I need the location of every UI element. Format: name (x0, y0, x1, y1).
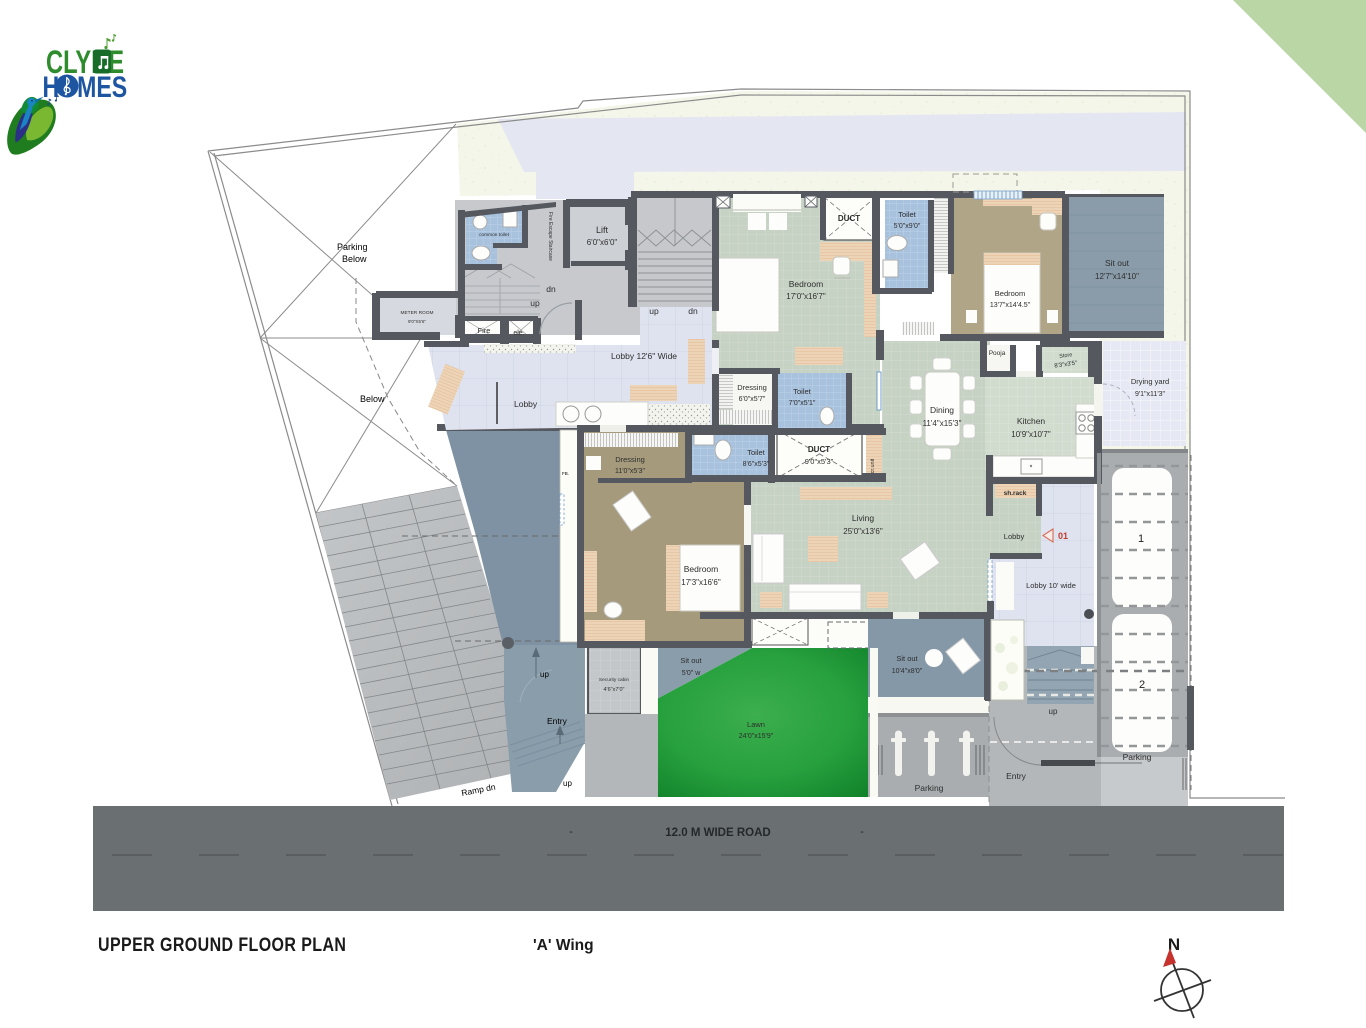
svg-text:Lobby: Lobby (1004, 532, 1025, 541)
svg-text:Sit out: Sit out (680, 656, 702, 665)
svg-text:8'6"x5'3": 8'6"x5'3" (743, 461, 770, 468)
svg-text:Below: Below (360, 394, 385, 404)
svg-text:UPPER GROUND FLOOR PLAN: UPPER GROUND FLOOR PLAN (98, 934, 346, 956)
svg-text:ele.: ele. (513, 330, 524, 337)
svg-text:Living: Living (852, 513, 874, 523)
svg-text:2: 2 (1139, 679, 1145, 691)
svg-text:Bedroom: Bedroom (995, 289, 1025, 298)
svg-text:17'0"x16'7": 17'0"x16'7" (786, 292, 826, 301)
svg-text:Parking: Parking (337, 242, 368, 252)
svg-text:4'6"x7'0": 4'6"x7'0" (604, 687, 625, 693)
svg-text:-: - (569, 826, 573, 838)
svg-text:dn: dn (546, 284, 556, 294)
svg-text:7'0"x5'1": 7'0"x5'1" (789, 400, 816, 407)
svg-text:13'7"x14'4.5": 13'7"x14'4.5" (990, 302, 1031, 309)
svg-text:10'4"x8'0": 10'4"x8'0" (892, 668, 923, 675)
svg-text:METER ROOM: METER ROOM (400, 310, 433, 316)
svg-text:24'0"x15'9": 24'0"x15'9" (739, 733, 774, 740)
svg-text:9'1"x11'3": 9'1"x11'3" (1135, 391, 1166, 398)
svg-text:Lawn: Lawn (747, 720, 765, 729)
svg-text:common toilet: common toilet (479, 232, 510, 238)
svg-text:01: 01 (1058, 531, 1068, 541)
svg-text:11'0"x5'3": 11'0"x5'3" (615, 468, 646, 475)
svg-text:12'7"x14'10": 12'7"x14'10" (1095, 272, 1139, 281)
svg-text:Bedroom: Bedroom (684, 564, 719, 574)
svg-text:17'3"x16'6": 17'3"x16'6" (681, 578, 721, 587)
svg-text:up: up (563, 779, 572, 788)
svg-text:Fire: Fire (478, 326, 491, 335)
svg-text:12.0 M WIDE ROAD: 12.0 M WIDE ROAD (665, 827, 770, 839)
svg-text:Toilet: Toilet (747, 448, 765, 457)
svg-text:6'0"x6'0": 6'0"x6'0" (587, 238, 618, 247)
svg-text:5'0" w: 5'0" w (682, 670, 702, 677)
svg-text:Dressing: Dressing (615, 455, 645, 464)
svg-text:up: up (540, 670, 549, 679)
svg-text:Sit out: Sit out (1105, 258, 1130, 268)
svg-text:Fire Escape Staircase: Fire Escape Staircase (547, 212, 553, 261)
svg-text:sh.rack: sh.rack (1004, 490, 1027, 497)
svg-text:'A' Wing: 'A' Wing (533, 937, 594, 954)
svg-text:Dressing: Dressing (737, 383, 767, 392)
svg-text:Sit out: Sit out (896, 654, 918, 663)
svg-text:cr.unit: cr.unit (870, 458, 876, 473)
svg-text:DUCT: DUCT (838, 214, 860, 223)
svg-text:Below: Below (342, 254, 367, 264)
svg-text:up: up (649, 306, 659, 316)
svg-text:HOMES: HOMES (43, 70, 128, 104)
svg-text:dn: dn (688, 306, 698, 316)
svg-text:9'0"x5'3": 9'0"x5'3" (805, 457, 834, 466)
svg-text:Lobby 10' wide: Lobby 10' wide (1026, 581, 1076, 590)
svg-text:Lobby: Lobby (514, 399, 538, 409)
svg-text:11'4"x15'3": 11'4"x15'3" (923, 419, 962, 428)
svg-text:1: 1 (1138, 533, 1144, 545)
svg-text:Lobby 12'6" Wide: Lobby 12'6" Wide (611, 351, 677, 361)
svg-text:Parking: Parking (1123, 752, 1152, 762)
svg-text:5'0"x9'0": 5'0"x9'0" (894, 223, 921, 230)
svg-text:25'0"x13'6": 25'0"x13'6" (843, 527, 883, 536)
svg-text:Entry: Entry (1006, 771, 1027, 781)
svg-text:up: up (530, 298, 540, 308)
svg-text:9'0"X5'6": 9'0"X5'6" (408, 319, 426, 324)
svg-text:FB.: FB. (562, 471, 569, 476)
svg-text:Pooja: Pooja (989, 350, 1006, 357)
svg-text:Security cabin: Security cabin (599, 677, 629, 683)
svg-text:Kitchen: Kitchen (1017, 416, 1046, 426)
svg-text:Bedroom: Bedroom (789, 279, 824, 289)
svg-text:up: up (1049, 707, 1058, 716)
svg-text:Lift: Lift (596, 225, 609, 235)
svg-text:10'9"x10'7": 10'9"x10'7" (1011, 430, 1051, 439)
svg-text:-: - (860, 826, 864, 838)
svg-text:Toilet: Toilet (898, 210, 916, 219)
svg-text:Toilet: Toilet (793, 387, 811, 396)
svg-text:Drying yard: Drying yard (1131, 377, 1169, 386)
svg-text:Dining: Dining (930, 405, 954, 415)
svg-text:Entry: Entry (547, 716, 568, 726)
svg-text:DUCT: DUCT (808, 445, 830, 454)
svg-text:6'0"x5'7": 6'0"x5'7" (739, 396, 766, 403)
svg-text:Parking: Parking (915, 783, 944, 793)
